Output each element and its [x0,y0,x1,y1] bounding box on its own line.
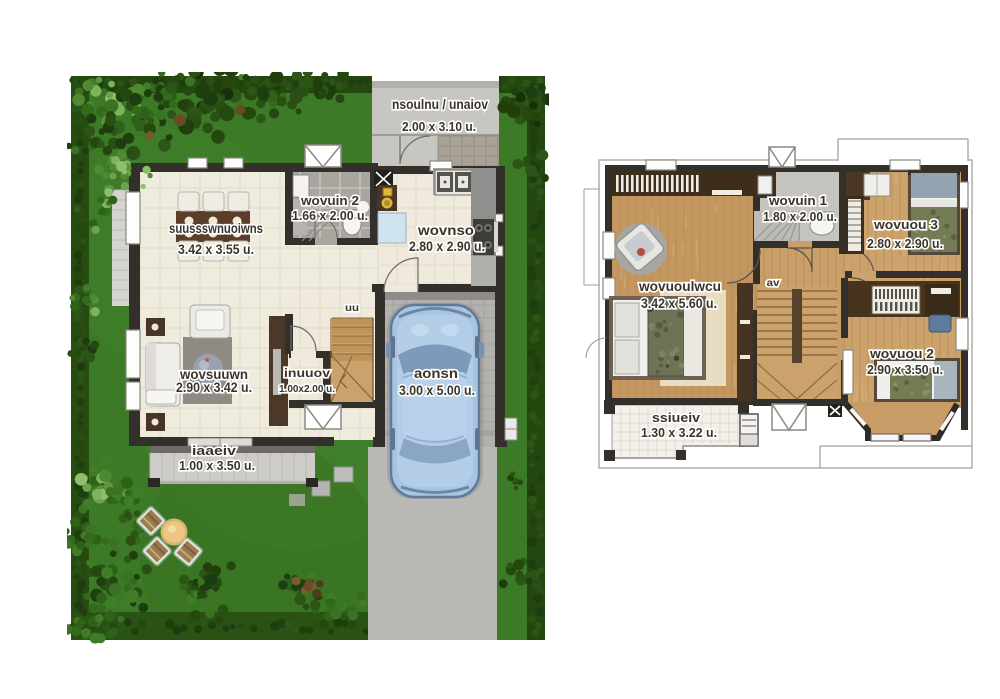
svg-text:2.80 x 2.90 u.: 2.80 x 2.90 u. [867,236,943,251]
svg-text:1.00 x 3.50 u.: 1.00 x 3.50 u. [179,458,255,473]
svg-text:wovuin 2: wovuin 2 [300,193,359,208]
svg-text:inuuov: inuuov [284,366,330,380]
svg-text:1.80 x 2.00 u.: 1.80 x 2.00 u. [763,209,837,224]
svg-text:3.42 x 3.55 u.: 3.42 x 3.55 u. [178,242,254,257]
svg-text:aonsn: aonsn [414,366,458,381]
svg-text:suussswnuoiwns: suussswnuoiwns [169,221,263,236]
svg-text:nsoulnu / unaiov: nsoulnu / unaiov [392,96,488,112]
svg-text:1.30 x 3.22 u.: 1.30 x 3.22 u. [641,425,717,440]
svg-text:2.00 x 3.10 u.: 2.00 x 3.10 u. [402,119,476,134]
svg-text:2.90 x 3.42 u.: 2.90 x 3.42 u. [176,380,252,395]
svg-text:wovuou 2: wovuou 2 [869,346,934,361]
svg-text:2.90 x 3.50 u.: 2.90 x 3.50 u. [867,362,943,377]
svg-text:wovuou 3: wovuou 3 [873,217,938,232]
svg-text:wovuoulwcu: wovuoulwcu [638,278,721,294]
svg-text:3.42 x 5.60 u.: 3.42 x 5.60 u. [641,296,717,311]
svg-text:ssiueiv: ssiueiv [652,410,701,425]
svg-text:1.00x2.00 u.: 1.00x2.00 u. [279,383,335,395]
svg-text:iaaeiv: iaaeiv [192,443,237,458]
svg-text:wovnso: wovnso [417,222,474,238]
svg-text:2.80 x 2.90 u.: 2.80 x 2.90 u. [409,239,485,254]
svg-text:1.66 x 2.00 u.: 1.66 x 2.00 u. [292,208,368,223]
svg-text:av: av [767,278,781,289]
svg-text:uu: uu [345,303,359,314]
svg-text:3.00 x 5.00 u.: 3.00 x 5.00 u. [399,383,475,398]
svg-text:wovuin 1: wovuin 1 [768,193,827,208]
